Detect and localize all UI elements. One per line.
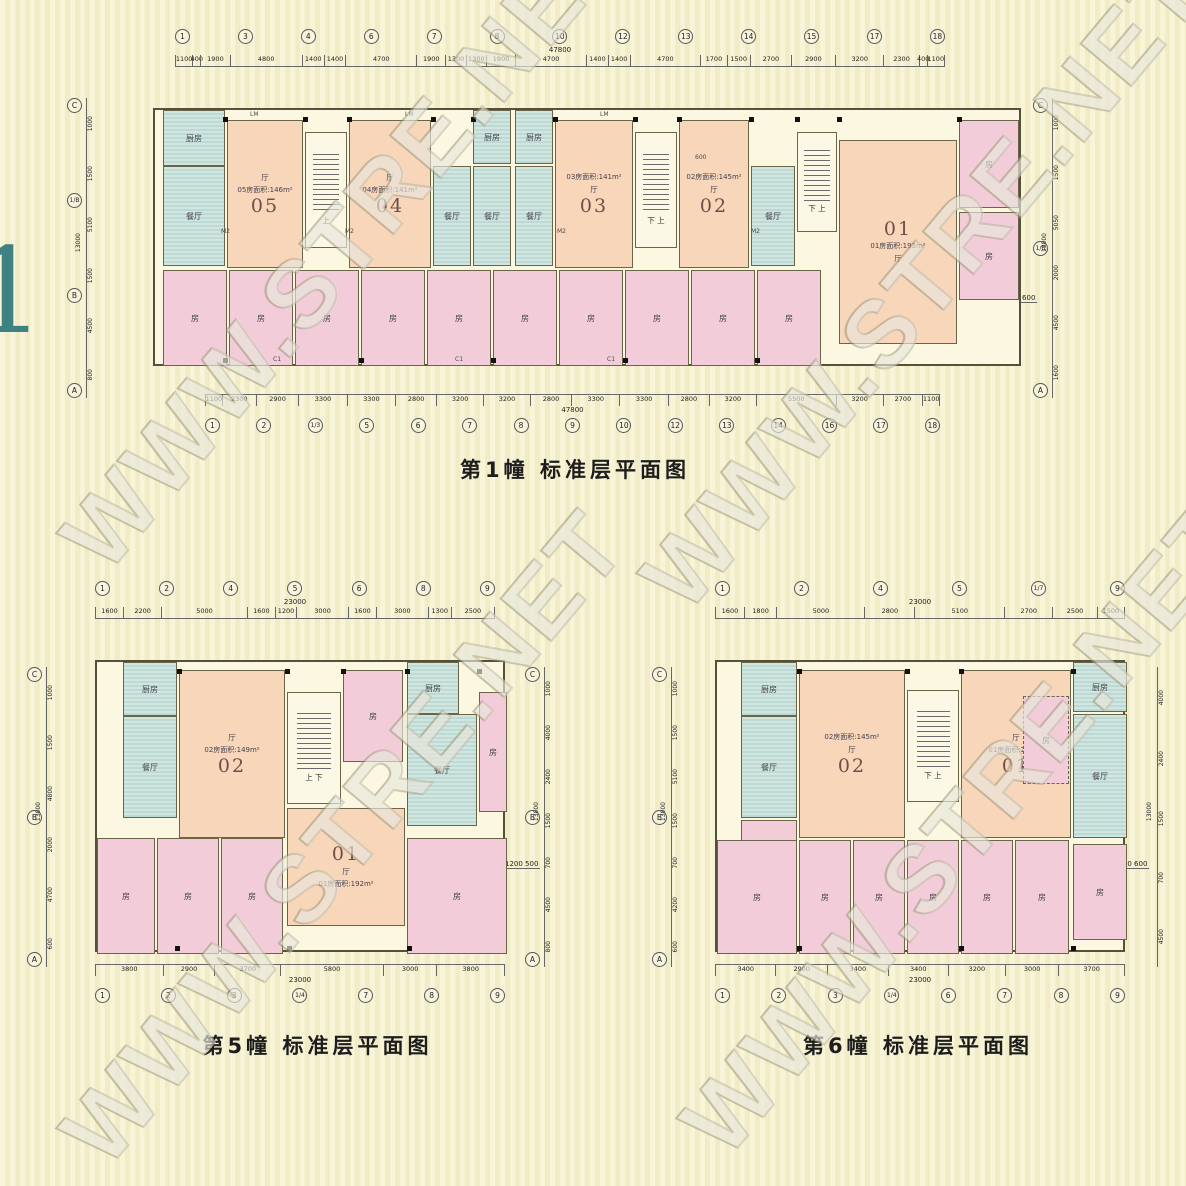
axis-bubble: 1/4 [884, 988, 899, 1003]
axis-letter-bubble: C [27, 667, 42, 682]
dim-label: 700 [1158, 872, 1165, 883]
dim-label: 1000 [1053, 115, 1060, 130]
door-mark: M2 [221, 228, 230, 235]
dim-segment: 1100 [927, 55, 945, 66]
room-label: 餐厅 [186, 211, 202, 222]
room-label: 厨房 [1092, 682, 1108, 693]
door-mark: M2 [557, 228, 566, 235]
window-mark: C1 [273, 356, 281, 363]
stair-treads [917, 711, 950, 768]
axis-bubble: 12 [668, 418, 683, 433]
room-label: 房 [985, 251, 993, 262]
stairwell: 下 上 [797, 132, 837, 232]
dim-label: 4200 [672, 897, 679, 912]
dim-segment: 1500 [1097, 607, 1125, 618]
dim-segment: 2700 [750, 55, 791, 66]
stairwell: 下 上 [635, 132, 677, 248]
axis-letter-bubble: A [67, 383, 82, 398]
axis-bubble: 18 [925, 418, 940, 433]
room-label: 厨房 [761, 684, 777, 695]
dim-label: 4000 [545, 725, 552, 740]
axis-total-label: 47800 [205, 406, 940, 415]
room-label: 餐厅 [434, 765, 450, 776]
axis-bubble: 8 [416, 581, 431, 596]
column-marker [405, 669, 410, 674]
axis-bubble-row: 121/35678910121314161718 [205, 418, 940, 433]
stair-direction-label: 上 下 [305, 772, 322, 783]
room-label: 餐厅 [484, 211, 500, 222]
dim-segment: 3200 [436, 395, 483, 406]
room-bedroom: 房 [295, 270, 359, 366]
dim-segment: 1600 [95, 607, 123, 618]
building5-bottom-axis: 380029003700580030003800 23000 1231/4789 [95, 964, 505, 1005]
room-kitchen: 厨房 [473, 110, 511, 164]
room-bedroom: 房 [853, 840, 905, 954]
axis-letter-bubble: C [525, 667, 540, 682]
unit-number: 05 [251, 197, 279, 216]
dim-segment: 5800 [280, 965, 383, 976]
axis-letter-bubble: A [1033, 383, 1048, 398]
room-label: 厨房 [484, 132, 500, 143]
axis-overall-dim: 13000 [533, 802, 540, 821]
column-marker [175, 946, 180, 951]
dim-segment: 2500 [1052, 607, 1097, 618]
stair-treads [297, 713, 331, 770]
dim-segment: 2300 [883, 55, 918, 66]
column-marker [223, 358, 228, 363]
axis-bubble: 6 [411, 418, 426, 433]
axis-bubble: 8 [490, 29, 505, 44]
building6-floor-plan: 厨房 餐厅 房 02房面积:145m²厅02 下 上 厅01房面积:203m²0… [715, 660, 1125, 952]
room-label: 房 [929, 892, 937, 903]
dim-segment: 1800 [744, 607, 776, 618]
axis-dim-column: 10001500510015004500800 [87, 98, 94, 398]
column-marker [287, 946, 292, 951]
building6-bottom-axis: 3400290034003400320030003700 23000 1231/… [715, 964, 1125, 1005]
column-marker [407, 946, 412, 951]
dim-label: 800 [87, 369, 94, 380]
hall-label: 厅 [228, 732, 236, 743]
bay-dimension-label: 1200 500 [503, 860, 540, 869]
axis-bubble-row: 1231/46789 [715, 988, 1125, 1003]
stair-direction-label: 下 上 [647, 215, 664, 226]
dim-segment: 5000 [161, 607, 247, 618]
building6-left-axis: CBA 10001500510015007004200600 13000 [652, 667, 682, 967]
column-marker [303, 117, 308, 122]
room-dining: 餐厅 [751, 166, 795, 266]
dim-label: 1500 [87, 268, 94, 283]
dim-label: 700 [545, 857, 552, 868]
room-label: 房 [1042, 735, 1050, 746]
column-marker [795, 117, 800, 122]
plan-building-5: 1245689 23000 16002200500016001200300016… [25, 572, 610, 1082]
axis-bubble: 2 [161, 988, 176, 1003]
dim-segment: 1400 [608, 55, 630, 66]
dim-segment: 3300 [347, 395, 395, 406]
unit-area-label: 03房面积:141m² [566, 172, 621, 182]
room-bedroom: 房 [427, 270, 491, 366]
dimension-row: 16001800500028005100270025001500 [715, 607, 1125, 619]
room-bedroom: 房 [959, 212, 1019, 300]
dim-segment: 3400 [715, 965, 775, 976]
column-marker [623, 358, 628, 363]
axis-letter-bubble: A [525, 952, 540, 967]
dim-segment: 3200 [836, 395, 883, 406]
dim-label: 1500 [1158, 811, 1165, 826]
axis-dim-column: 10004000240015007004500800 [545, 667, 552, 967]
room-label: 房 [248, 891, 256, 902]
hall-label: 厅 [1012, 732, 1020, 743]
dim-segment: 1200 [275, 607, 296, 618]
dim-note: 600 [695, 154, 706, 161]
dim-segment: 3200 [483, 395, 530, 406]
axis-overall-dim: 13000 [1146, 802, 1153, 821]
room-bedroom: 房 [1023, 696, 1069, 784]
room-label: 餐厅 [526, 211, 542, 222]
building1-bottom-axis: 1100230029003300330028003200320028003300… [205, 394, 940, 435]
dim-segment: 1900 [200, 55, 229, 66]
axis-bubble: 18 [930, 29, 945, 44]
unit-area-label: 01房面积:193m² [870, 241, 925, 251]
dim-segment: 3000 [383, 965, 437, 976]
dim-segment: 3000 [376, 607, 428, 618]
column-marker [431, 117, 436, 122]
room-bedroom: 房 [691, 270, 755, 366]
unit-hall-04: 厅04房面积:141m²04 [349, 120, 431, 268]
unit-hall-02: 02房面积:145m²厅02 [799, 670, 905, 838]
scanned-floor-plan-sheet: { "watermark": {"text": "WWW.STRE.NET"},… [0, 0, 1186, 1115]
dim-label: 1000 [672, 681, 679, 696]
dim-label: 2000 [47, 837, 54, 852]
unit-area-label: 05房面积:146m² [237, 185, 292, 195]
room-label: 房 [323, 313, 331, 324]
dim-segment: 3700 [1058, 965, 1125, 976]
room-kitchen: 厨房 [123, 662, 177, 716]
stairwell: 上 [305, 132, 347, 248]
stair-treads [643, 154, 669, 213]
axis-bubble: 17 [873, 418, 888, 433]
plan-title: 第5幢 标准层平面图 [25, 1030, 610, 1060]
dim-label: 800 [545, 941, 552, 952]
dim-segment: 2900 [775, 965, 827, 976]
dim-label: 1500 [672, 725, 679, 740]
axis-letter-bubble: C [67, 98, 82, 113]
room-bedroom: 房 [479, 692, 507, 812]
unit-hall-02: 02房面积:145m²厅02 [679, 120, 749, 268]
building1-top-axis: 13467810121314151718 47800 1100400190048… [175, 28, 945, 67]
dim-segment: 4700 [630, 55, 701, 66]
room-bedroom: 房 [625, 270, 689, 366]
room-bedroom: 房 [361, 270, 425, 366]
axis-bubble: 4 [223, 581, 238, 596]
window-mark: C1 [607, 356, 615, 363]
room-kitchen: 厨房 [163, 110, 225, 166]
room-bedroom: 房 [493, 270, 557, 366]
stairwell: 下 上 [907, 690, 959, 802]
axis-bubble: 15 [804, 29, 819, 44]
axis-bubble: 1 [95, 988, 110, 1003]
dim-segment: 1300 [428, 607, 451, 618]
unit-hall-01: 0101房面积:193m²厅 [839, 140, 957, 344]
axis-bubble: 14 [771, 418, 786, 433]
axis-bubble: 1 [175, 29, 190, 44]
edge-partial-glyph: 1 [0, 232, 45, 350]
stair-direction-label: 上 [322, 215, 330, 226]
axis-total-label: 23000 [715, 976, 1125, 985]
room-label: 房 [1096, 887, 1104, 898]
room-label: 厨房 [142, 684, 158, 695]
dim-segment: 3800 [436, 965, 505, 976]
door-mark: M2 [751, 228, 760, 235]
axis-bubble: 2 [256, 418, 271, 433]
axis-bubble-row: 1231/4789 [95, 988, 505, 1003]
room-bedroom: 房 [163, 270, 227, 366]
dim-label: 5100 [87, 217, 94, 232]
window-mark: LM [250, 111, 259, 118]
building1-left-axis: C1/BBA 10001500510015004500800 13000 [67, 98, 97, 398]
dim-segment: 3000 [1005, 965, 1058, 976]
axis-bubble: 1 [205, 418, 220, 433]
dim-label: 4000 [1158, 690, 1165, 705]
unit-area-label: 04房面积:141m² [362, 185, 417, 195]
room-bedroom: 房 [717, 840, 797, 954]
column-marker [471, 117, 476, 122]
axis-overall-dim: 13000 [35, 802, 42, 821]
unit-number: 02 [218, 757, 246, 776]
dim-segment: 1600 [715, 607, 744, 618]
axis-bubble: 4 [301, 29, 316, 44]
axis-bubble: 9 [490, 988, 505, 1003]
unit-number: 02 [838, 757, 866, 776]
dim-label: 4500 [1158, 929, 1165, 944]
room-bedroom: 房 [559, 270, 623, 366]
dim-segment: 1700 [700, 55, 726, 66]
window-mark: LM [600, 111, 609, 118]
dim-segment: 1300 [445, 55, 465, 66]
room-label: 房 [521, 313, 529, 324]
dimension-row: 1600220050001600120030001600300013002500 [95, 607, 495, 619]
building5-top-axis: 1245689 23000 16002200500016001200300016… [95, 580, 495, 619]
axis-dim-column: 100015005050200045001600 [1053, 98, 1060, 398]
room-bedroom: 房 [407, 838, 507, 954]
dim-segment: 2900 [256, 395, 299, 406]
dim-label: 4500 [1053, 315, 1060, 330]
dimension-row: 380029003700580030003800 [95, 964, 505, 976]
dim-segment: 2800 [668, 395, 709, 406]
room-bedroom: 房 [221, 838, 283, 954]
axis-bubble: 6 [941, 988, 956, 1003]
room-label: 房 [122, 891, 130, 902]
room-dining: 餐厅 [433, 166, 471, 266]
room-label: 房 [719, 313, 727, 324]
room-label: 房 [983, 892, 991, 903]
room-dining: 餐厅 [473, 166, 511, 266]
stair-direction-label: 下 上 [924, 770, 941, 781]
axis-bubble: 17 [867, 29, 882, 44]
axis-bubble: 7 [462, 418, 477, 433]
room-dining: 餐厅 [123, 716, 177, 818]
door-mark: M2 [345, 228, 354, 235]
column-marker [797, 946, 802, 951]
axis-bubble-row: 12451/79 [715, 581, 1125, 596]
dim-segment: 400 [919, 55, 927, 66]
dim-segment: 2800 [864, 607, 914, 618]
column-marker [553, 117, 558, 122]
room-kitchen: 厨房 [515, 110, 553, 164]
column-marker [633, 117, 638, 122]
stair-treads [313, 154, 339, 213]
axis-bubble: 5 [952, 581, 967, 596]
room-label: 房 [455, 313, 463, 324]
unit-hall-01: 01厅01房面积:192m² [287, 808, 405, 926]
axis-bubble: 4 [873, 581, 888, 596]
room-label: 房 [257, 313, 265, 324]
window-mark: C1 [455, 356, 463, 363]
room-bedroom: 房 [157, 838, 219, 954]
axis-letter-bubble: B [67, 288, 82, 303]
room-dining: 餐厅 [163, 166, 225, 266]
room-label: 房 [653, 313, 661, 324]
room-label: 房 [489, 747, 497, 758]
dimension-row: 3400290034003400320030003700 [715, 964, 1125, 976]
column-marker [1071, 946, 1076, 951]
unit-number: 02 [700, 197, 728, 216]
column-marker [285, 669, 290, 674]
dim-segment: 3200 [835, 55, 884, 66]
building5-left-axis: CBA 10001500480020004700600 13000 [27, 667, 57, 967]
dim-label: 1600 [1053, 365, 1060, 380]
axis-bubble: 1/3 [308, 418, 323, 433]
axis-bubble: 13 [719, 418, 734, 433]
dim-segment: 3200 [709, 395, 756, 406]
column-marker [755, 358, 760, 363]
dim-label: 700 [672, 857, 679, 868]
room-label: 房 [821, 892, 829, 903]
axis-bubble: 8 [1054, 988, 1069, 1003]
unit-number: 03 [580, 197, 608, 216]
room-label: 餐厅 [765, 211, 781, 222]
axis-bubble: 1/7 [1031, 581, 1046, 596]
dim-segment: 1400 [324, 55, 346, 66]
room-bedroom: 房 [343, 670, 403, 762]
dim-segment: 3000 [296, 607, 348, 618]
axis-bubble: 9 [565, 418, 580, 433]
room-label: 房 [369, 711, 377, 722]
axis-total-label: 23000 [95, 598, 495, 607]
unit-hall-02: 厅02房面积:149m²02 [179, 670, 285, 838]
hall-label: 厅 [386, 172, 394, 183]
dim-segment: 1100 [922, 395, 940, 406]
room-label: 房 [1038, 892, 1046, 903]
dim-segment: 3300 [571, 395, 619, 406]
room-bedroom: 房 [961, 840, 1013, 954]
room-label: 房 [389, 313, 397, 324]
hall-label: 厅 [590, 184, 598, 195]
dim-segment: 1400 [302, 55, 324, 66]
axis-bubble: 9 [480, 581, 495, 596]
axis-letter-bubble: A [27, 952, 42, 967]
dim-segment: 4700 [515, 55, 586, 66]
building1-floor-plan: 厨房 餐厅 厅05房面积:146m²05 上 厅04房面积:141m²04 餐厅… [153, 108, 1021, 366]
column-marker [959, 946, 964, 951]
unit-area-label: 02房面积:149m² [204, 745, 259, 755]
dim-segment: 400 [192, 55, 200, 66]
axis-bubble: 5 [287, 581, 302, 596]
dim-label: 4800 [47, 786, 54, 801]
axis-bubble: 8 [514, 418, 529, 433]
axis-bubble: 1 [715, 581, 730, 596]
axis-bubble: 3 [238, 29, 253, 44]
unit-area-label: 01房面积:192m² [318, 879, 373, 889]
dim-segment: 1400 [586, 55, 608, 66]
axis-overall-dim: 13000 [75, 233, 82, 252]
room-label: 餐厅 [142, 762, 158, 773]
dim-segment: 3400 [888, 965, 948, 976]
building6-right-axis: 4000240015007004500 13000 [1138, 667, 1168, 967]
dim-label: 4500 [87, 318, 94, 333]
axis-bubble: 12 [615, 29, 630, 44]
axis-bubble: 1 [95, 581, 110, 596]
dim-segment: 2800 [395, 395, 436, 406]
axis-bubble: 3 [227, 988, 242, 1003]
column-marker [177, 669, 182, 674]
axis-bubble: 2 [159, 581, 174, 596]
column-marker [905, 669, 910, 674]
dim-segment: 1300 [466, 55, 486, 66]
plan-title: 第1幢 标准层平面图 [65, 454, 1085, 484]
axis-bubble: 3 [828, 988, 843, 1003]
room-label: 餐厅 [761, 762, 777, 773]
dim-segment: 5100 [914, 607, 1004, 618]
unit-number: 01 [884, 220, 912, 239]
dim-label: 1500 [47, 735, 54, 750]
hall-label: 厅 [261, 172, 269, 183]
hall-label: 厅 [342, 866, 350, 877]
axis-bubble: 13 [678, 29, 693, 44]
column-marker [797, 669, 802, 674]
room-bedroom: 房 [799, 840, 851, 954]
dim-segment: 3700 [214, 965, 280, 976]
hall-label: 厅 [710, 184, 718, 195]
column-marker [347, 117, 352, 122]
axis-letter-bubble: 1/B [67, 193, 82, 208]
column-marker [677, 117, 682, 122]
dim-label: 600 [47, 938, 54, 949]
axis-bubble: 14 [741, 29, 756, 44]
column-marker [477, 669, 482, 674]
axis-bubble: 10 [616, 418, 631, 433]
dim-segment: 5000 [776, 607, 864, 618]
room-kitchen: 厨房 [741, 662, 797, 716]
room-dining: 餐厅 [1073, 714, 1127, 838]
building5-right-axis: CBA 10004000240015007004500800 13000 [525, 667, 555, 967]
axis-total-label: 23000 [95, 976, 505, 985]
axis-bubble: 9 [1110, 581, 1125, 596]
dim-label: 1500 [545, 813, 552, 828]
axis-total-label: 47800 [175, 46, 945, 55]
dim-segment: 2700 [883, 395, 923, 406]
room-bedroom: 房 [97, 838, 155, 954]
room-label: 房 [587, 313, 595, 324]
dim-label: 1000 [545, 681, 552, 696]
stairwell: 上 下 [287, 692, 341, 804]
dim-segment: 3400 [827, 965, 887, 976]
axis-bubble: 10 [552, 29, 567, 44]
axis-total-label: 23000 [715, 598, 1125, 607]
dim-label: 1500 [87, 166, 94, 181]
room-bedroom: 房 [229, 270, 293, 366]
column-marker [837, 117, 842, 122]
